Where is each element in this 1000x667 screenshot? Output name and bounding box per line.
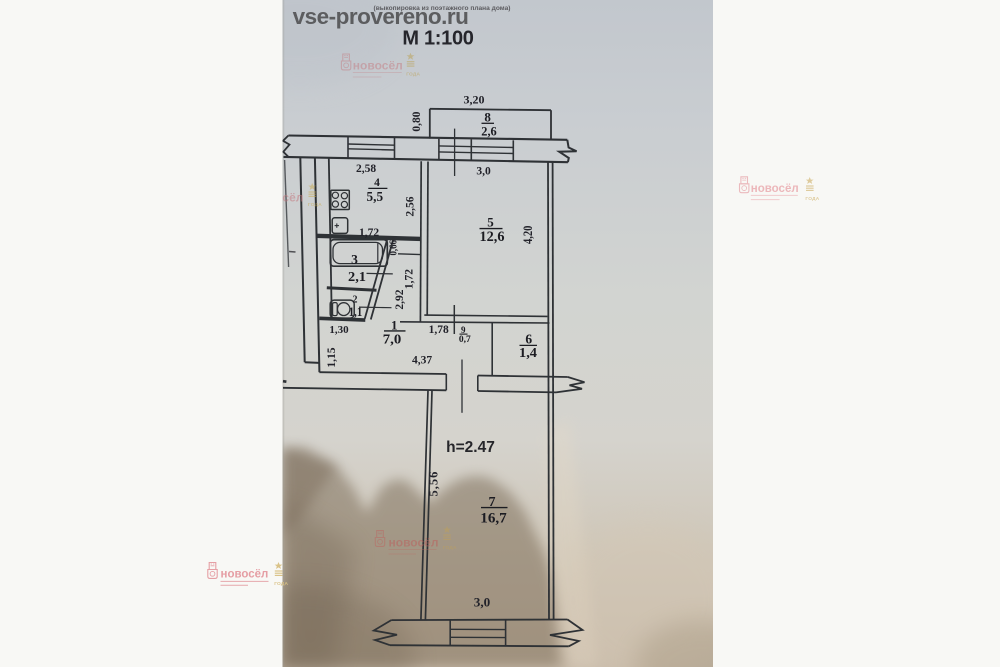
svg-text:vse-provereno.ru: vse-provereno.ru — [293, 4, 469, 29]
svg-text:2,92: 2,92 — [394, 289, 406, 309]
svg-text:1,1: 1,1 — [349, 305, 363, 319]
svg-text:5: 5 — [487, 214, 494, 229]
svg-text:0,66: 0,66 — [389, 240, 400, 256]
svg-text:9: 9 — [461, 325, 466, 335]
svg-text:5,56: 5,56 — [427, 471, 441, 497]
svg-text:7,0: 7,0 — [383, 333, 402, 348]
svg-text:3,20: 3,20 — [464, 93, 485, 107]
svg-text:новосёл: новосёл — [353, 58, 403, 72]
svg-text:0,80: 0,80 — [411, 111, 423, 131]
svg-text:2,1: 2,1 — [348, 270, 366, 285]
svg-text:2,56: 2,56 — [405, 196, 417, 216]
svg-text:М 1:100: М 1:100 — [402, 28, 473, 50]
svg-text:1,30: 1,30 — [329, 324, 349, 336]
svg-text:новосёл: новосёл — [751, 183, 799, 195]
svg-text:12,6: 12,6 — [480, 229, 505, 245]
svg-text:8: 8 — [484, 110, 491, 125]
svg-text:3,0: 3,0 — [474, 595, 491, 610]
svg-text:h=2.47: h=2.47 — [446, 439, 495, 456]
svg-text:1,72: 1,72 — [359, 227, 379, 239]
svg-text:новосёл: новосёл — [389, 535, 439, 549]
svg-text:3: 3 — [351, 252, 358, 267]
svg-text:1,15: 1,15 — [326, 347, 338, 367]
svg-text:1,72: 1,72 — [404, 269, 416, 289]
svg-text:2,6: 2,6 — [481, 124, 497, 138]
svg-text:4,20: 4,20 — [521, 226, 535, 245]
svg-text:4: 4 — [374, 177, 380, 189]
svg-text:3,0: 3,0 — [476, 165, 491, 177]
svg-text:новосёл: новосёл — [253, 191, 303, 205]
svg-text:0,7: 0,7 — [459, 335, 471, 345]
svg-text:16,7: 16,7 — [480, 510, 507, 526]
svg-text:2,58: 2,58 — [356, 163, 376, 175]
svg-text:новосёл: новосёл — [221, 569, 269, 581]
svg-text:1,4: 1,4 — [519, 345, 537, 360]
svg-text:4,37: 4,37 — [412, 354, 432, 366]
svg-text:1,78: 1,78 — [429, 324, 449, 336]
svg-text:2: 2 — [353, 294, 358, 305]
svg-text:5,5: 5,5 — [367, 190, 384, 205]
